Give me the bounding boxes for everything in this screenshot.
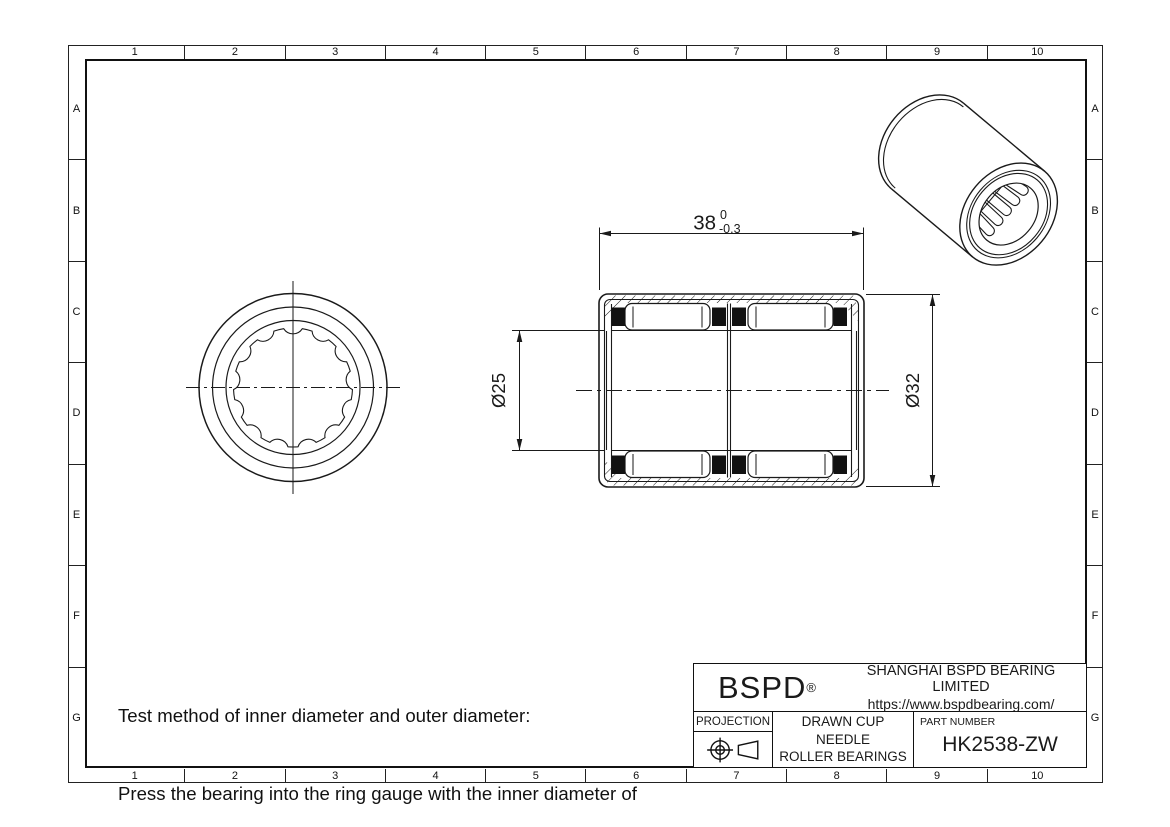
test-method-note: Test method of inner diameter and outer …	[118, 651, 637, 827]
brand-logo: BSPD®	[694, 664, 840, 711]
part-number-value: HK2538-ZW	[914, 728, 1086, 767]
iso-near-rim-chamfer	[949, 154, 1067, 275]
iso-bore-edge	[967, 171, 1051, 257]
first-angle-projection-icon	[694, 732, 772, 767]
part-number-label: PART NUMBER	[914, 712, 1086, 728]
iso-near-rim-outer	[940, 144, 1078, 285]
projection-label: PROJECTION	[694, 712, 772, 732]
iso-view	[858, 75, 1077, 284]
roller-top-left	[625, 304, 710, 331]
roller-bottom-right	[748, 451, 833, 478]
dim-outer-value: Ø32	[902, 373, 923, 408]
company-name: SHANGHAI BSPD BEARING LIMITED	[840, 663, 1082, 695]
roller-top-right	[748, 304, 833, 331]
dim-outer-arrow-top	[930, 295, 936, 307]
product-title-line-2: ROLLER BEARINGS	[773, 748, 913, 766]
drawing-sheet: 12345678910 12345678910 ABCDEFG ABCDEFG	[0, 0, 1170, 827]
roller-bottom-left	[625, 451, 710, 478]
title-block: BSPD® SHANGHAI BSPD BEARING LIMITED http…	[693, 663, 1087, 768]
dimensions: 38 0 -0.3 Ø25 Ø32	[488, 208, 940, 487]
dim-outer-arrow-bottom	[930, 475, 936, 487]
dim-width-arrow-right	[852, 231, 864, 237]
part-number-cell: PART NUMBER HK2538-ZW	[914, 712, 1086, 767]
title-block-detail-row: PROJECTION DRAWN CUP NEEDLE ROLLER BEARI…	[694, 712, 1086, 767]
section-view	[576, 294, 889, 487]
projection-cell: PROJECTION	[694, 712, 773, 767]
dim-bore-value: Ø25	[488, 373, 509, 408]
dim-bore-arrow-bottom	[517, 439, 523, 451]
dim-bore-arrow-top	[517, 331, 523, 343]
company-info: SHANGHAI BSPD BEARING LIMITED https://ww…	[840, 664, 1086, 711]
note-line-2: Press the bearing into the ring gauge wi…	[118, 781, 637, 807]
iso-far-chamfer	[865, 81, 964, 188]
product-title: DRAWN CUP NEEDLE ROLLER BEARINGS	[773, 712, 914, 767]
dim-width-tol-lower: -0.3	[719, 222, 741, 236]
title-block-header-row: BSPD® SHANGHAI BSPD BEARING LIMITED http…	[694, 664, 1086, 712]
note-line-1: Test method of inner diameter and outer …	[118, 703, 637, 729]
iso-near-lip	[954, 158, 1064, 271]
dim-width-value: 38	[693, 212, 716, 235]
front-view	[186, 281, 400, 494]
company-website: https://www.bspdbearing.com/	[840, 696, 1082, 712]
iso-far-rim	[858, 75, 963, 188]
registered-trademark-mark: ®	[806, 680, 816, 695]
dim-width-arrow-left	[600, 231, 612, 237]
iso-silhouette-top	[963, 103, 1044, 171]
brand-name: BSPD	[718, 670, 806, 706]
product-title-line-1: DRAWN CUP NEEDLE	[773, 713, 913, 748]
dim-width-tol-upper: 0	[720, 208, 727, 222]
